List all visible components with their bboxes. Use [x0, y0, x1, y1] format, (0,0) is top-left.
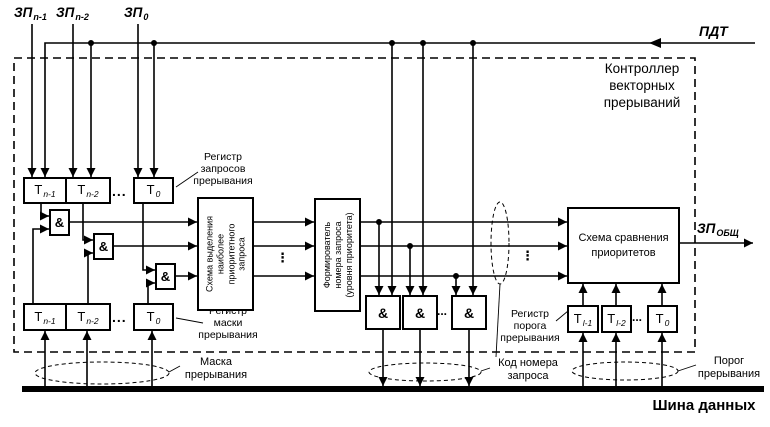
output-label-zp-obsh: ЗПОБЩ — [697, 221, 739, 238]
threshold-register-cell: Т0 — [647, 305, 678, 333]
request-register-cell: Тn-1 — [23, 177, 67, 204]
input-label-zp-0: ЗП0 — [124, 5, 148, 22]
pdt-direction-arrow — [649, 38, 661, 48]
ellipsis: ... — [632, 311, 642, 323]
mask-register-cell: Т0 — [133, 303, 174, 331]
controller-title: Контроллер векторных прерываний — [588, 61, 696, 112]
vertical-ellipsis: ⋮ — [276, 252, 289, 265]
and-gate: & — [49, 209, 70, 236]
threshold-annotation: Порог прерывания — [692, 355, 766, 381]
and-gate: & — [451, 295, 487, 330]
threshold-register-cell: Тl-2 — [601, 305, 632, 333]
number-former-block: Формирователь номера запроса (уровня при… — [314, 198, 361, 312]
mask-register-cell: Тn-2 — [65, 303, 111, 331]
ellipsis: ... — [112, 184, 127, 198]
ellipsis: ... — [437, 305, 447, 317]
threshold-register-cell: Тl-1 — [567, 305, 599, 333]
and-gate: & — [402, 295, 438, 330]
priority-compare-block: Схема сравнения приоритетов — [567, 207, 680, 284]
and-gate: & — [365, 295, 401, 330]
and-gate: & — [93, 233, 114, 260]
pdt-label: ПДТ — [699, 23, 728, 39]
ellipsis: ... — [112, 310, 127, 324]
mask-register-cell: Тn-1 — [23, 303, 67, 331]
data-bus-bar — [22, 386, 764, 392]
and-gate: & — [155, 263, 176, 290]
junction-dots — [88, 40, 476, 279]
data-bus-label: Шина данных — [648, 397, 760, 414]
interrupt-controller-diagram: ЗПn-1 ЗПn-2 ЗП0 ПДТ ЗПОБЩ Контроллер век… — [0, 0, 770, 427]
priority-select-block: Схема выделения наиболее приоритетного з… — [197, 197, 254, 311]
request-register-cell: Т0 — [133, 177, 174, 204]
input-label-zp-n2: ЗПn-2 — [56, 5, 89, 22]
code-annotation: Код номера запроса — [488, 357, 568, 383]
input-label-zp-n1: ЗПn-1 — [14, 5, 47, 22]
vertical-ellipsis: ⋮ — [521, 250, 534, 263]
request-register-label: Регистр запросов прерывания — [189, 151, 257, 188]
request-register-cell: Тn-2 — [65, 177, 111, 204]
threshold-register-label: Регистр порога прерывания — [497, 308, 563, 345]
mask-annotation: Маска прерывания — [174, 356, 258, 382]
